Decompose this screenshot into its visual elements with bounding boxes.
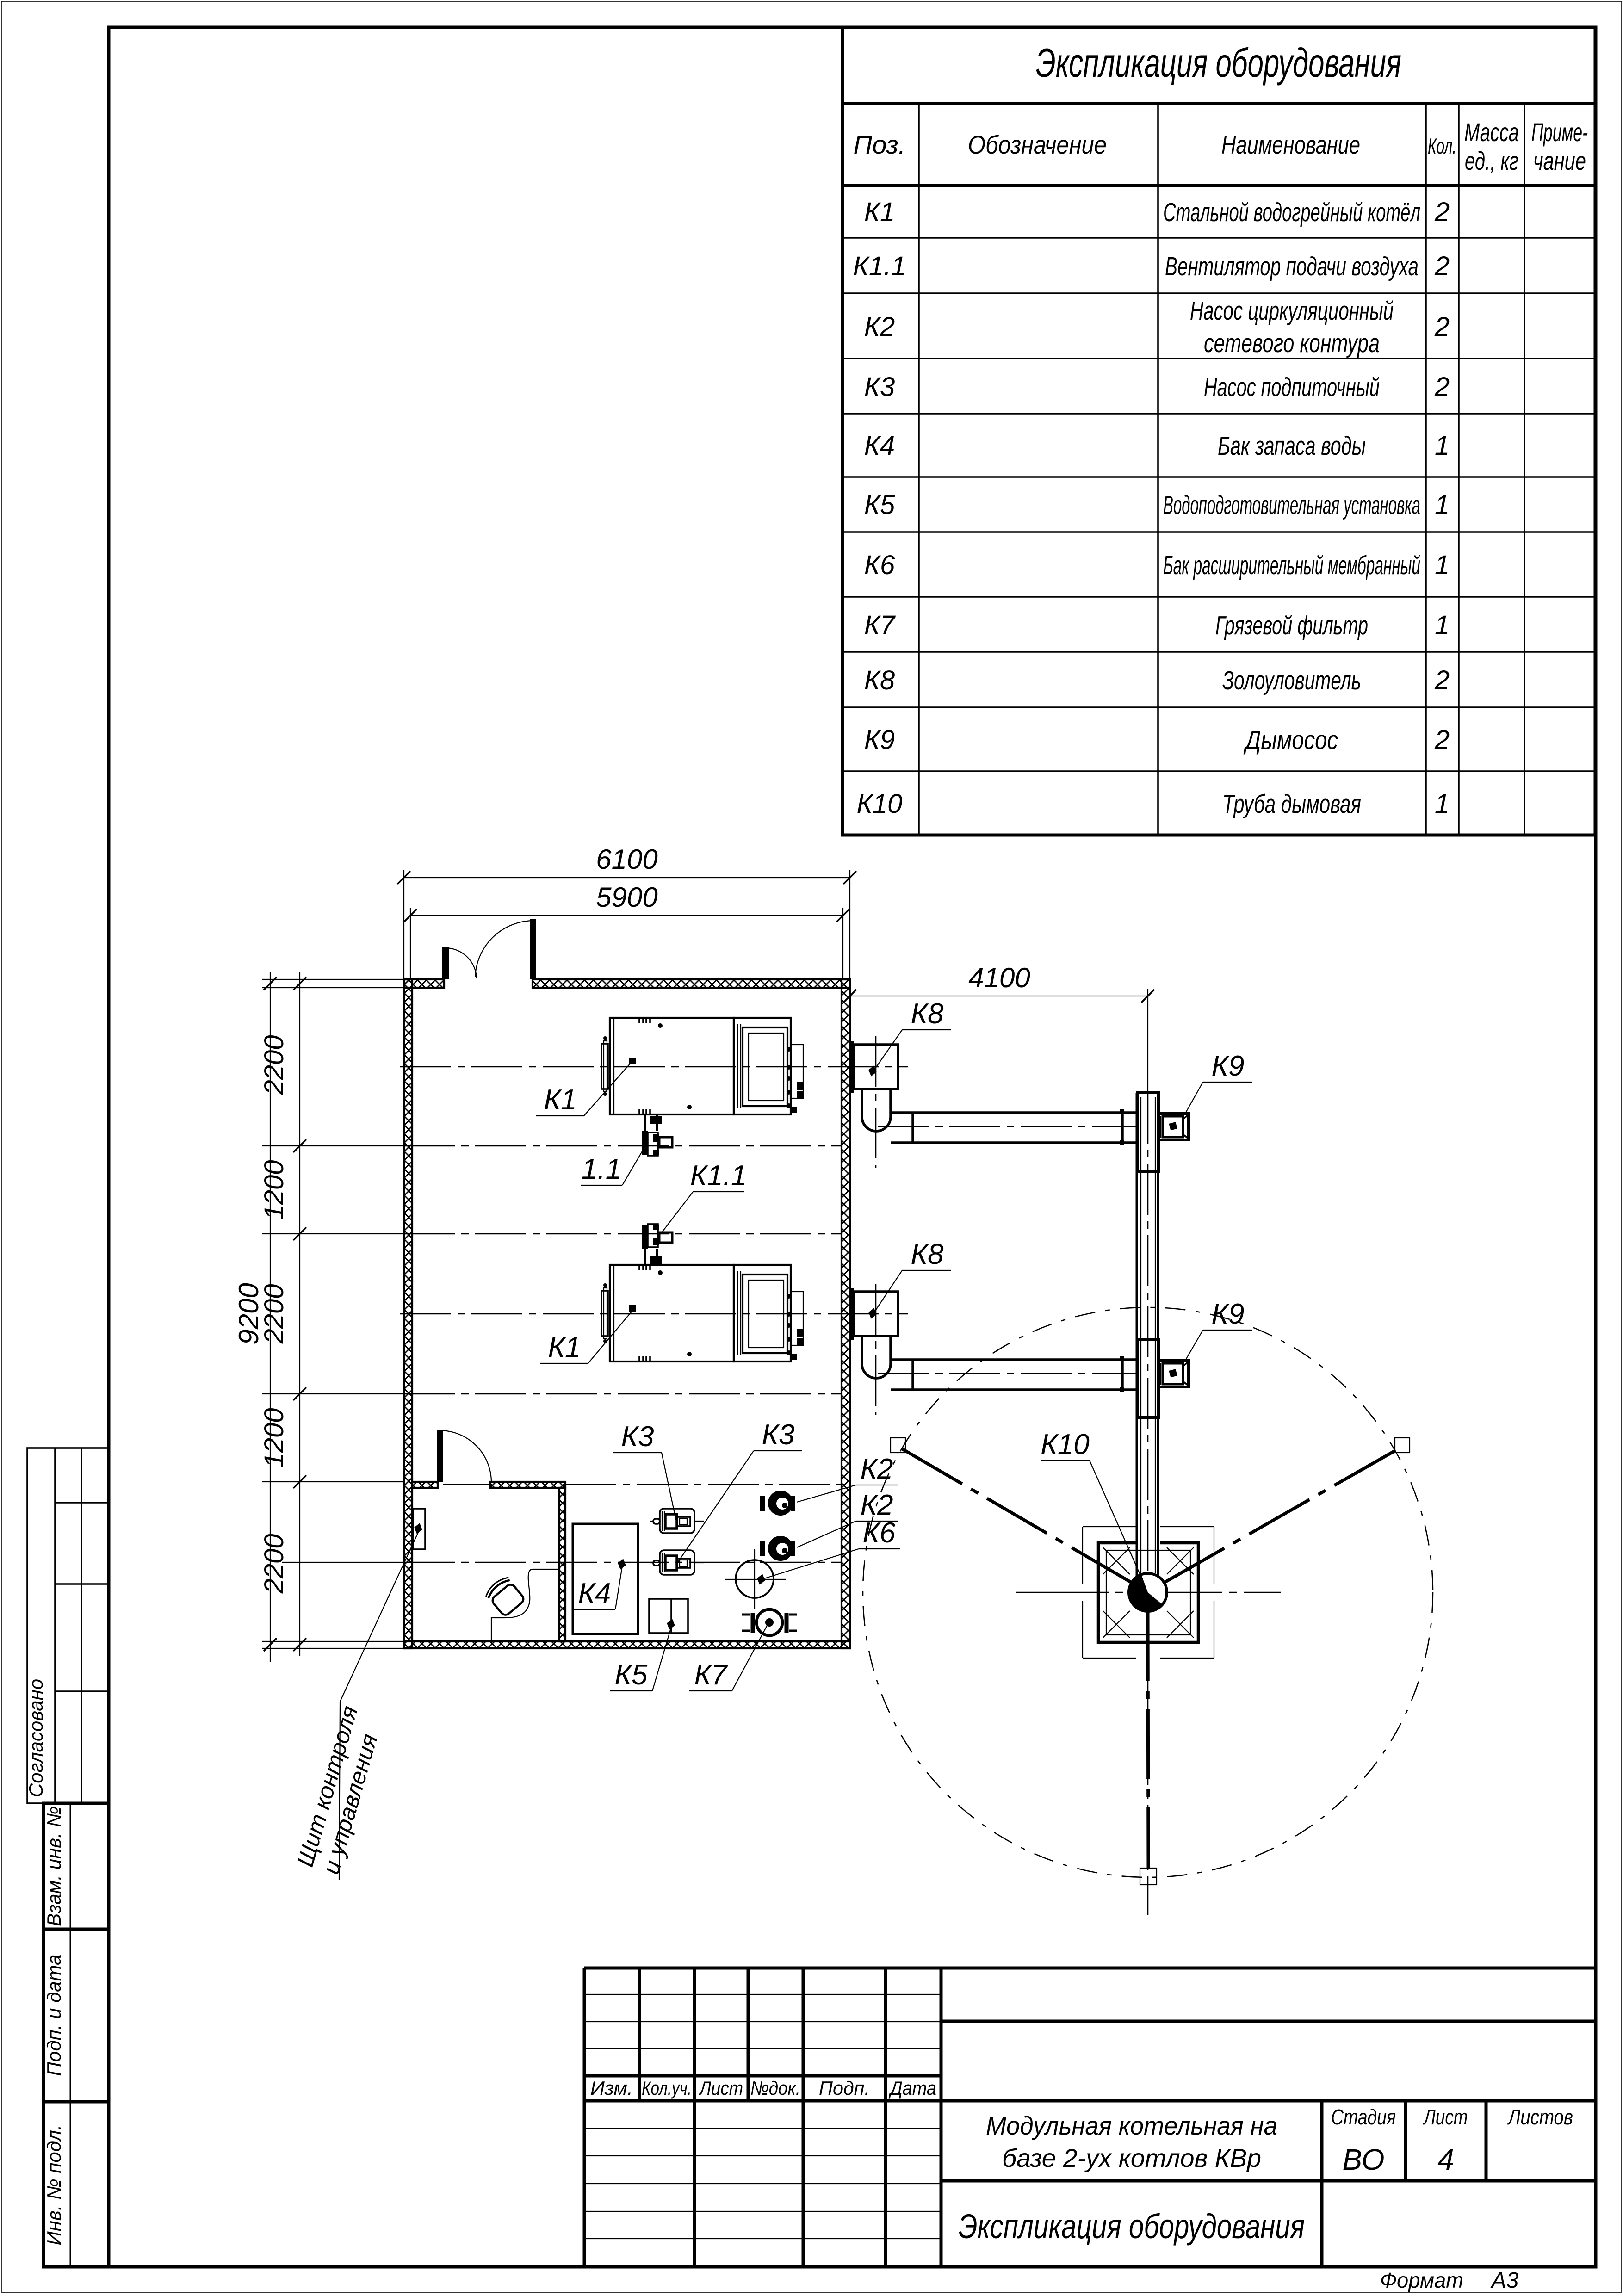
svg-text:сетевого контура: сетевого контура: [1204, 328, 1380, 358]
svg-text:4100: 4100: [968, 962, 1030, 993]
svg-text:К8: К8: [911, 1238, 944, 1270]
svg-text:К1.1: К1.1: [690, 1160, 747, 1192]
svg-text:2: 2: [1434, 197, 1450, 227]
svg-text:1200: 1200: [259, 1160, 289, 1219]
svg-text:4: 4: [1437, 2143, 1454, 2176]
svg-text:К1: К1: [544, 1084, 576, 1116]
svg-text:Насос циркуляционный: Насос циркуляционный: [1190, 296, 1394, 326]
svg-text:К1: К1: [864, 197, 895, 227]
svg-text:Масса: Масса: [1464, 118, 1519, 147]
svg-text:1: 1: [1435, 550, 1450, 580]
svg-text:К8: К8: [864, 665, 895, 695]
svg-text:Подп.: Подп.: [819, 2077, 870, 2099]
svg-text:Стальной водогрейный котёл: Стальной водогрейный котёл: [1163, 198, 1420, 227]
svg-text:Насос подпиточный: Насос подпиточный: [1204, 372, 1380, 402]
svg-text:Стадия: Стадия: [1331, 2105, 1396, 2129]
svg-text:5900: 5900: [596, 882, 657, 913]
svg-text:2200: 2200: [259, 1035, 289, 1095]
svg-text:Формат: Формат: [1380, 2268, 1463, 2292]
svg-text:Экспликация оборудования: Экспликация оборудования: [1036, 40, 1401, 86]
svg-text:Дата: Дата: [888, 2077, 936, 2099]
svg-text:К4: К4: [864, 431, 895, 461]
svg-text:К7: К7: [864, 610, 896, 640]
svg-text:Изм.: Изм.: [590, 2077, 633, 2099]
svg-text:А3: А3: [1490, 2268, 1519, 2293]
svg-text:К3: К3: [864, 372, 895, 402]
svg-text:Согласовано: Согласовано: [25, 1679, 47, 1797]
svg-text:Лист: Лист: [1423, 2105, 1468, 2129]
svg-text:2: 2: [1434, 312, 1450, 342]
svg-text:К3: К3: [762, 1419, 794, 1451]
svg-text:К2: К2: [860, 1453, 893, 1485]
svg-text:Обозначение: Обозначение: [968, 130, 1107, 159]
svg-text:Лист: Лист: [698, 2077, 743, 2099]
svg-text:2: 2: [1434, 251, 1450, 281]
svg-text:Вентилятор подачи воздуха: Вентилятор подачи воздуха: [1165, 252, 1419, 281]
svg-text:2200: 2200: [259, 1534, 289, 1594]
svg-text:Кол.уч.: Кол.уч.: [642, 2077, 692, 2099]
svg-text:Труба дымовая: Труба дымовая: [1222, 789, 1361, 819]
svg-text:2: 2: [1434, 372, 1450, 402]
svg-text:К9: К9: [1211, 1298, 1244, 1330]
svg-text:К9: К9: [864, 725, 895, 755]
svg-text:Грязевой фильтр: Грязевой фильтр: [1215, 611, 1368, 640]
svg-text:Наименование: Наименование: [1221, 130, 1360, 159]
svg-text:Экспликация оборудования: Экспликация оборудования: [959, 2207, 1305, 2246]
svg-text:Водоподготовительная установка: Водоподготовительная установка: [1163, 490, 1420, 520]
svg-text:Поз.: Поз.: [854, 130, 906, 159]
svg-text:К7: К7: [694, 1659, 728, 1691]
svg-text:К6: К6: [864, 550, 895, 580]
svg-text:2: 2: [1434, 665, 1450, 695]
svg-text:К9: К9: [1211, 1050, 1244, 1082]
svg-text:чание: чание: [1533, 146, 1586, 175]
svg-text:К10: К10: [857, 789, 903, 819]
svg-text:1200: 1200: [259, 1408, 289, 1467]
svg-text:К4: К4: [578, 1578, 611, 1609]
svg-text:1: 1: [1435, 789, 1450, 819]
svg-text:К10: К10: [1041, 1429, 1090, 1461]
svg-text:Листов: Листов: [1507, 2105, 1573, 2129]
svg-text:К8: К8: [911, 998, 944, 1030]
svg-text:Бак расширительный мембранный: Бак расширительный мембранный: [1163, 551, 1420, 580]
svg-text:Кол.: Кол.: [1428, 134, 1456, 158]
svg-text:ВО: ВО: [1342, 2143, 1384, 2176]
svg-text:Инв. № подл.: Инв. № подл.: [43, 2125, 65, 2246]
svg-text:К6: К6: [862, 1517, 896, 1549]
svg-text:1: 1: [1435, 490, 1450, 520]
svg-text:Дымосос: Дымосос: [1243, 725, 1338, 755]
svg-text:К1.1: К1.1: [853, 251, 906, 281]
svg-text:Золоуловитель: Золоуловитель: [1222, 666, 1361, 695]
svg-text:К2: К2: [860, 1489, 893, 1521]
svg-text:базе 2-ух котлов КВр: базе 2-ух котлов КВр: [1002, 2143, 1261, 2172]
svg-text:К5: К5: [614, 1659, 648, 1691]
svg-text:Модульная котельная на: Модульная котельная на: [986, 2111, 1277, 2140]
svg-text:1: 1: [1435, 610, 1450, 640]
svg-text:К5: К5: [864, 490, 895, 520]
svg-text:Приме-: Приме-: [1531, 118, 1588, 147]
svg-text:6100: 6100: [596, 844, 657, 875]
svg-text:1: 1: [1435, 431, 1450, 461]
svg-text:Подп. и дата: Подп. и дата: [43, 1955, 65, 2076]
svg-text:ед., кг: ед., кг: [1465, 146, 1518, 175]
svg-text:№док.: №док.: [750, 2077, 800, 2099]
svg-text:Бак запаса воды: Бак запаса воды: [1218, 431, 1366, 461]
svg-text:1.1: 1.1: [582, 1153, 621, 1185]
svg-text:2200: 2200: [259, 1284, 289, 1344]
svg-text:2: 2: [1434, 725, 1450, 755]
svg-text:К3: К3: [621, 1421, 654, 1453]
svg-text:К1: К1: [548, 1331, 581, 1363]
svg-text:К2: К2: [864, 312, 895, 342]
svg-text:Взам. инв. №: Взам. инв. №: [43, 1806, 65, 1926]
